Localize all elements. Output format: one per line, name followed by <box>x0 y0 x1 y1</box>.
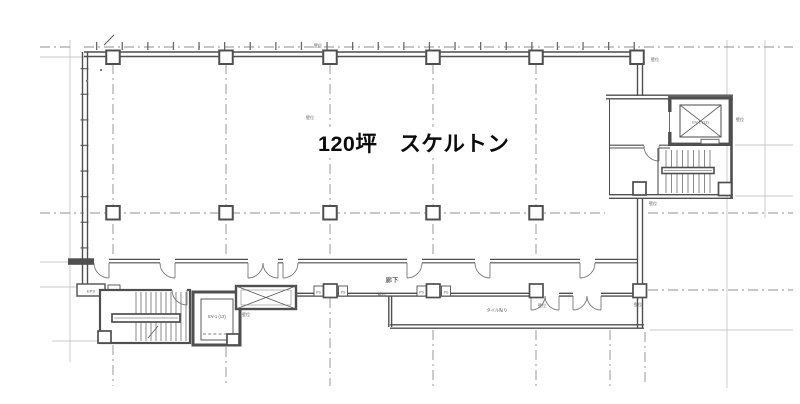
wall-marker-6: 壁位 <box>378 291 386 297</box>
top-right-core <box>606 95 733 198</box>
column-mid-1 <box>106 206 120 220</box>
left-wall <box>83 52 88 284</box>
column-top-5 <box>529 51 543 65</box>
column-top-2 <box>219 51 233 65</box>
eps-label: EPS <box>87 289 95 294</box>
ps-label-2: PS <box>341 291 346 295</box>
door-arc-5 <box>475 263 490 278</box>
elevator-top-label: EV-2 (11) <box>692 120 709 125</box>
door-arc-6 <box>580 263 595 278</box>
wall-marker-5: 壁位 <box>538 302 546 308</box>
wall-marker-1: 壁位 <box>651 56 659 62</box>
corridor-upper-wall <box>80 259 637 262</box>
top-wall <box>84 52 644 57</box>
column-top-3 <box>323 51 337 65</box>
dot-mark-1 <box>100 69 102 71</box>
door-arc-core-right <box>644 146 659 161</box>
wall-marker-4: 壁位 <box>634 301 642 307</box>
column-wall-1 <box>324 284 338 298</box>
labels: 120坪 スケルトン 廊下 タイル貼り EV-2 (11) EV-1 (13) … <box>87 42 744 319</box>
corridor-label: 廊下 <box>386 275 400 284</box>
column-wall-2 <box>427 284 441 298</box>
door-arc-2 <box>160 263 175 278</box>
area-label: 120坪 スケルトン <box>318 132 509 156</box>
column-core-left <box>633 182 646 195</box>
corridor-left-block <box>68 258 94 265</box>
elevator-bottom-label: EV-1 (13) <box>208 314 226 319</box>
core-mid-wall <box>609 145 670 148</box>
column-mid-4 <box>426 206 440 220</box>
column-mid-2 <box>219 206 233 220</box>
elevator-counterweight-top <box>701 139 719 144</box>
outer-walls <box>83 52 645 328</box>
wall-marker-9: 壁位 <box>306 114 314 120</box>
column-mid-3 <box>323 206 337 220</box>
ps-label-1: PS <box>316 291 321 295</box>
dot-mark-2 <box>86 80 88 82</box>
door-arc-double-3 <box>573 296 601 310</box>
door-arc-1 <box>94 263 109 278</box>
door-arc-double-1 <box>248 263 278 278</box>
wall-marker-8: 壁位 <box>314 42 322 48</box>
column-wall-3 <box>530 284 544 298</box>
band-left-wall <box>389 296 392 327</box>
floor-plan-page: 120坪 スケルトン 廊下 タイル貼り EV-2 (11) EV-1 (13) … <box>0 0 800 404</box>
ps-label-4: PS <box>444 291 449 295</box>
column-core-right <box>719 183 732 196</box>
column-top-6 <box>630 51 644 65</box>
floor-plan-drawing: 120坪 スケルトン 廊下 タイル貼り EV-2 (11) EV-1 (13) … <box>0 0 800 404</box>
column-mid-5 <box>529 206 543 220</box>
ps-label-3: PS <box>419 291 424 295</box>
right-wall-mid <box>638 198 643 284</box>
break-symbol <box>104 35 114 45</box>
wall-marker-2: 壁位 <box>736 116 744 122</box>
column-top-4 <box>426 51 440 65</box>
column-stair-corner <box>98 331 111 343</box>
wall-marker-3: 壁位 <box>649 200 657 206</box>
door-arcs <box>94 146 659 310</box>
wall-marker-7: 壁位 <box>242 311 250 317</box>
door-arc-3 <box>283 263 298 278</box>
stair-door-gap <box>172 288 187 293</box>
door-arc-4 <box>407 263 422 278</box>
column-ev-corner <box>227 334 239 345</box>
corridor-lower-wall <box>296 293 645 296</box>
column-corner-br <box>633 284 647 298</box>
column-top-1 <box>106 51 120 65</box>
bottom-wall <box>390 325 644 328</box>
corridor-note-label: タイル貼り <box>487 307 508 314</box>
